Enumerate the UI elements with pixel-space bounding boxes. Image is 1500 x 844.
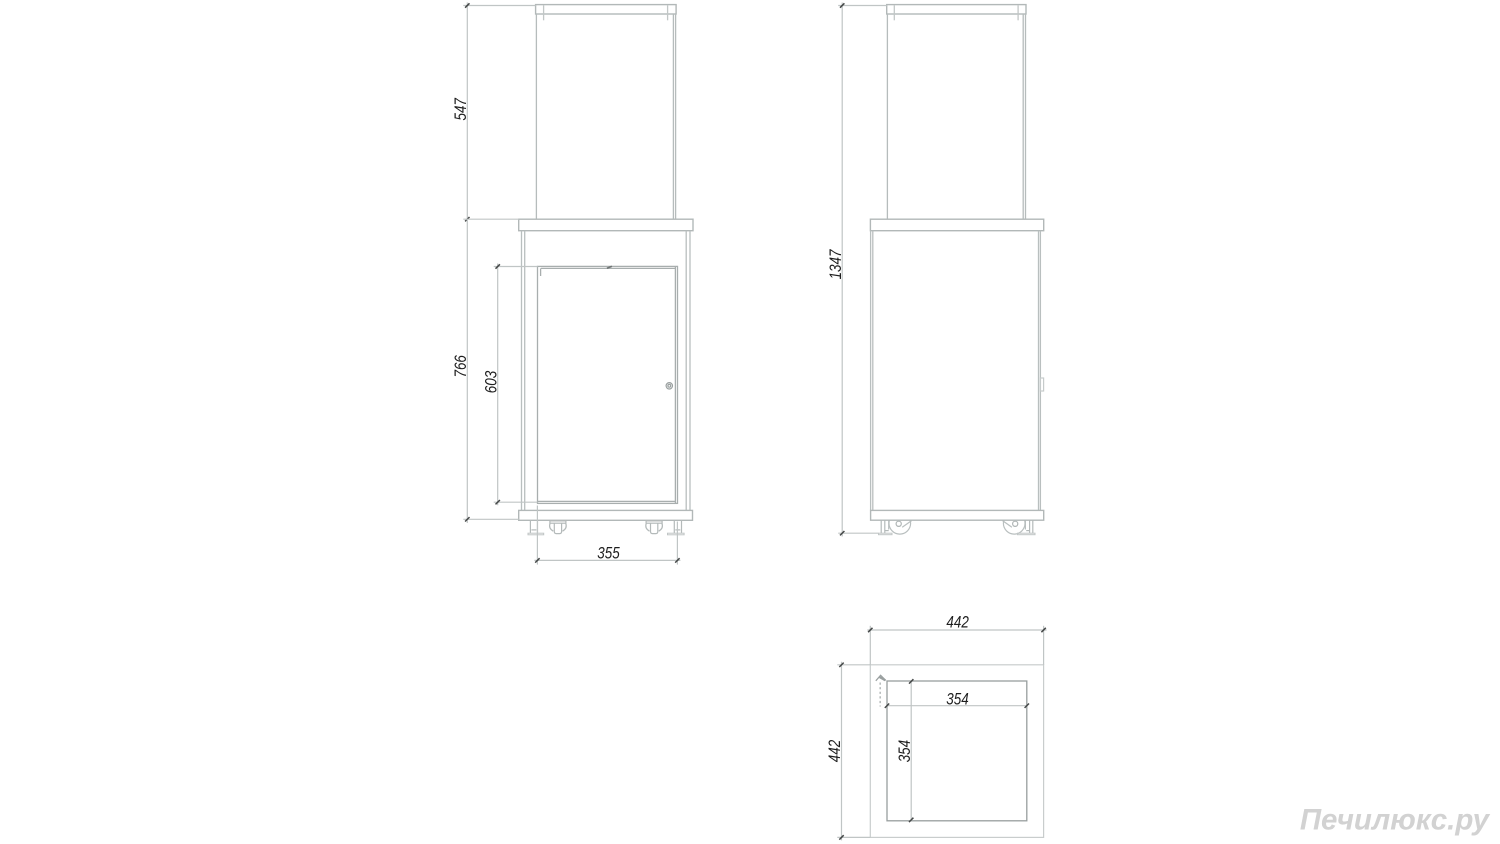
svg-text:603: 603 (482, 370, 501, 393)
svg-text:442: 442 (946, 613, 969, 632)
svg-text:547: 547 (452, 98, 471, 121)
svg-text:766: 766 (452, 355, 471, 378)
svg-text:Печилюкс.ру: Печилюкс.ру (1300, 804, 1491, 837)
svg-text:354: 354 (946, 690, 968, 709)
svg-text:1347: 1347 (827, 249, 846, 279)
svg-text:442: 442 (826, 739, 845, 762)
svg-text:354: 354 (895, 740, 914, 762)
svg-text:355: 355 (597, 544, 620, 563)
